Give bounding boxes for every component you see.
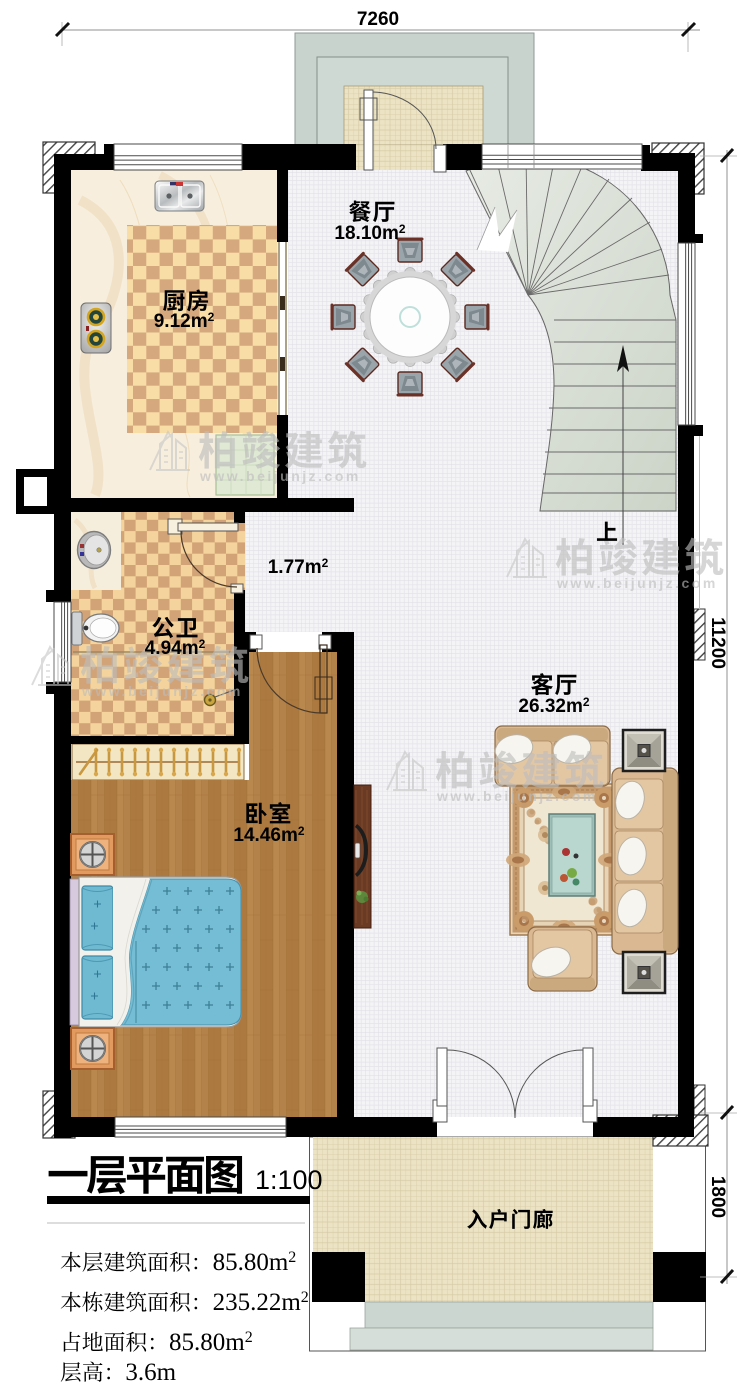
- svg-text:85.80m2: 85.80m2: [169, 1329, 253, 1356]
- svg-text:1800: 1800: [707, 1176, 728, 1218]
- svg-text:www.beijunjz.com: www.beijunjz.com: [556, 575, 718, 591]
- svg-text:www.beijunjz.com: www.beijunjz.com: [199, 468, 361, 484]
- svg-text:www.beijunjz.com: www.beijunjz.com: [436, 788, 598, 804]
- svg-text:9.12m2: 9.12m2: [154, 310, 215, 332]
- svg-text:18.10m2: 18.10m2: [334, 222, 405, 244]
- svg-text:3.6m: 3.6m: [125, 1359, 176, 1383]
- svg-text:85.80m2: 85.80m2: [213, 1249, 297, 1276]
- svg-text:1.77m2: 1.77m2: [268, 556, 329, 578]
- svg-text:1:100: 1:100: [255, 1165, 323, 1195]
- svg-text:7260: 7260: [357, 9, 399, 30]
- svg-text:235.22m2: 235.22m2: [213, 1289, 309, 1316]
- svg-text:4.94m2: 4.94m2: [145, 637, 206, 659]
- svg-text:11200: 11200: [707, 617, 728, 669]
- svg-text:14.46m2: 14.46m2: [233, 824, 304, 846]
- svg-text:www.beijunjz.com: www.beijunjz.com: [81, 683, 243, 699]
- svg-text:26.32m2: 26.32m2: [518, 695, 589, 717]
